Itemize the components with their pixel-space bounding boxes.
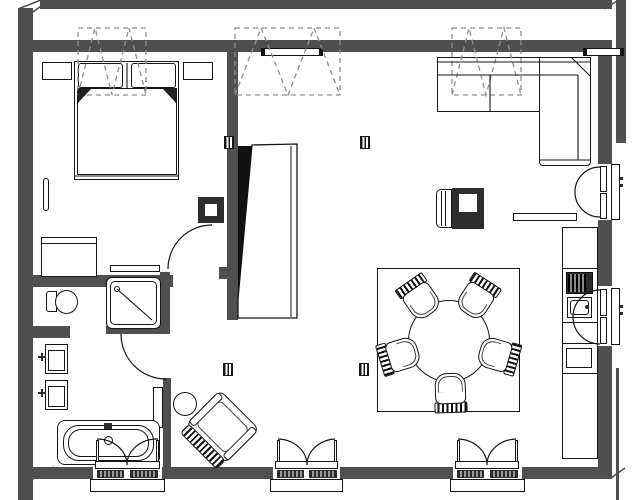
bathroom-door-arc: [121, 334, 166, 379]
stove-fireplace-window: [459, 194, 477, 212]
window-frame: [457, 470, 484, 478]
window-swing-arc: [575, 192, 600, 217]
nightstand-left: [42, 62, 72, 80]
window-leaf: [600, 193, 607, 219]
partition-panel-shadow: [238, 146, 252, 299]
window-swing-arc: [575, 167, 600, 192]
kitchen-faucet-icon: [585, 305, 589, 309]
pillow-left: [78, 63, 123, 88]
structural-column-core: [205, 204, 217, 216]
window-leaf: [600, 166, 607, 192]
window-hinge-dot: [620, 305, 623, 308]
wall-bottom-d: [522, 467, 612, 479]
wall-left: [18, 8, 33, 500]
kitchen-counter-line-3: [562, 343, 598, 344]
wall-right-outer-line: [616, 368, 619, 500]
wall-bottom-c: [340, 467, 453, 479]
window-leaf-stub: [156, 440, 159, 462]
wall-bottom-b: [162, 467, 273, 479]
window-hinge-dot: [620, 184, 623, 187]
floor-marker-icon: [360, 136, 370, 149]
radiator-top: [261, 48, 323, 56]
wall-bathroom-right: [163, 378, 171, 468]
window-leaf-stub: [457, 440, 460, 462]
window-sill: [270, 479, 343, 492]
sofa-body: [437, 57, 540, 112]
window-leaf-stub: [277, 440, 280, 462]
armchair: [436, 189, 452, 228]
window-leaf-stub: [334, 440, 337, 462]
window-leaf: [600, 317, 607, 344]
wall-top-outer-band: [40, 0, 612, 9]
toilet-bowl: [55, 290, 78, 314]
wall-door-jamb: [219, 267, 227, 279]
window-frame: [490, 470, 518, 478]
bedroom-door-arc: [168, 225, 212, 269]
window-sill: [90, 479, 165, 492]
washbasin-1-basin: [48, 350, 65, 371]
kitchen-counter-line-2: [562, 322, 598, 323]
wall-right-outer-band: [616, 0, 626, 143]
floor-marker-icon: [359, 363, 369, 376]
armchair-line-2: [445, 191, 446, 226]
wall-partition-bedroom: [227, 52, 238, 320]
wall-stub-toilet: [33, 326, 70, 338]
wall-shelf-bedroom: [110, 265, 160, 272]
window-track-bar: [275, 461, 338, 469]
nightstand-right: [183, 62, 213, 80]
window-track-bar: [455, 461, 519, 469]
window-leaf-stub: [515, 440, 518, 462]
corner-lintel-bar: [583, 48, 624, 56]
dresser-edge: [41, 243, 97, 244]
kitchen-counter-line-4: [562, 373, 598, 374]
window-frame: [309, 470, 337, 478]
armchair-line-1: [441, 191, 442, 226]
side-table: [173, 392, 197, 416]
faucet-1-icon-v: [41, 353, 43, 361]
window-sill: [611, 164, 620, 220]
window-leaf: [600, 289, 607, 316]
wall-right-upper: [598, 40, 612, 164]
pillow-right: [131, 63, 176, 88]
kitchen-counter-line-1: [562, 268, 598, 269]
floor-plan: [0, 0, 640, 500]
shower-tray-inner: [110, 281, 157, 325]
window-frame: [130, 470, 158, 478]
wall-bottom-a: [18, 467, 93, 479]
kitchen-cabinet: [566, 348, 592, 368]
window-track-bar: [95, 461, 160, 469]
dining-chair-seat: [434, 372, 466, 404]
window-sill: [450, 479, 525, 492]
wall-shower-right: [160, 272, 170, 334]
window-hinge-dot: [620, 177, 623, 180]
radiator-left: [43, 178, 49, 211]
window-sill: [611, 288, 620, 345]
window-frame: [97, 470, 124, 478]
wall-right-lower: [598, 346, 612, 478]
sofa-chaise: [539, 57, 591, 166]
floor-marker-icon: [223, 363, 233, 376]
bathtub-drain: [104, 436, 113, 445]
dining-chair: [433, 372, 468, 413]
cooktop-grill: [568, 274, 586, 292]
wall-shelf-living: [513, 213, 577, 221]
faucet-2-icon-v: [41, 389, 43, 397]
partition-panel: [238, 144, 297, 318]
wall-right-middle: [598, 220, 612, 286]
window-hinge-dot: [620, 312, 623, 315]
floor-marker-icon: [224, 136, 234, 149]
bed-blanket: [77, 88, 177, 175]
window-leaf-stub: [96, 440, 99, 462]
bathtub-faucet-icon: [104, 423, 112, 429]
window-frame: [277, 470, 304, 478]
washbasin-2-basin: [48, 386, 65, 407]
